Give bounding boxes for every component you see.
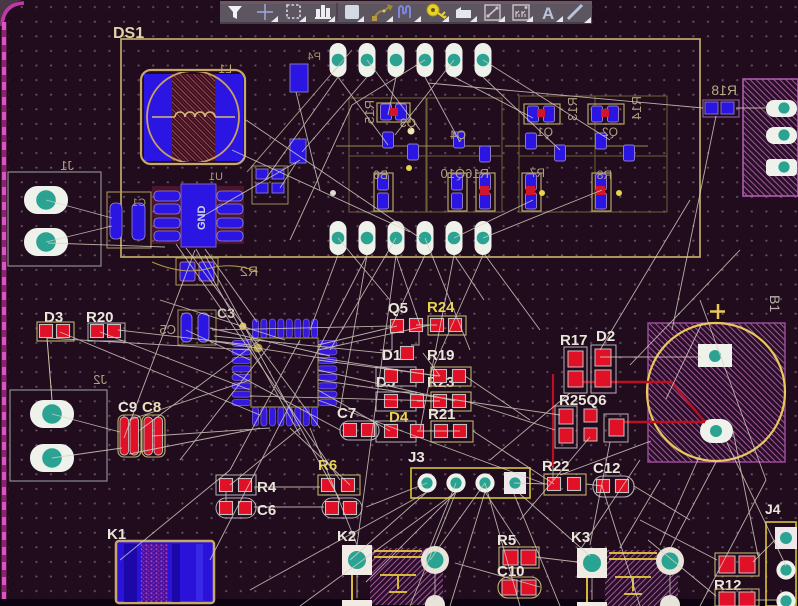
svg-text:B6: B6	[373, 168, 388, 182]
svg-text:Q4: Q4	[450, 128, 466, 142]
svg-text:R17: R17	[560, 332, 588, 349]
svg-text:R14: R14	[629, 96, 644, 120]
svg-text:J2: J2	[93, 372, 107, 387]
svg-text:A: A	[542, 4, 554, 23]
svg-text:C8: C8	[142, 399, 161, 416]
svg-text:P4: P4	[308, 51, 321, 63]
svg-text:J1: J1	[60, 158, 74, 173]
svg-text:C1: C1	[132, 197, 146, 209]
svg-text:DS1: DS1	[113, 25, 144, 42]
svg-text:R16Q10: R16Q10	[441, 166, 489, 181]
svg-text:U1: U1	[209, 171, 223, 183]
svg-text:R18: R18	[711, 82, 737, 98]
svg-text:R12: R12	[714, 577, 742, 594]
svg-text:C9: C9	[118, 399, 137, 416]
svg-text:D1: D1	[382, 347, 401, 364]
svg-text:Q1: Q1	[537, 125, 553, 139]
svg-text:C12: C12	[593, 460, 621, 477]
svg-text:D4: D4	[389, 409, 409, 426]
svg-text:Q5: Q5	[388, 300, 408, 317]
svg-text:B1: B1	[767, 295, 783, 312]
svg-text:D3: D3	[44, 309, 63, 326]
svg-text:D2: D2	[596, 328, 615, 345]
svg-text:GND: GND	[196, 206, 208, 231]
svg-text:K3: K3	[571, 529, 590, 546]
svg-text:Q2: Q2	[602, 125, 618, 139]
svg-text:C6: C6	[257, 502, 276, 519]
svg-text:L1: L1	[218, 62, 232, 76]
svg-text:R13: R13	[565, 97, 580, 121]
svg-text:R4: R4	[257, 479, 277, 496]
svg-text:R8: R8	[596, 168, 612, 182]
svg-text:J3: J3	[408, 449, 425, 466]
svg-text:R7: R7	[529, 166, 545, 180]
svg-text:J4: J4	[765, 501, 781, 517]
